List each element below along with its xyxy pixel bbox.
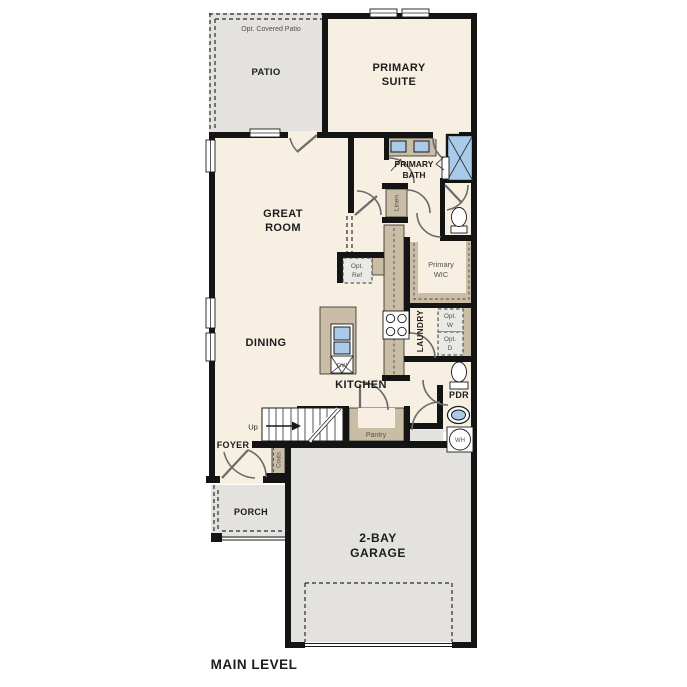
water-heater-label: WH xyxy=(455,438,465,444)
window-left-3 xyxy=(206,333,215,361)
great-room-label-1: GREAT xyxy=(263,208,303,220)
primary-bath-label-2: BATH xyxy=(403,170,426,180)
opt-dryer-label-1: Opt. xyxy=(444,336,456,343)
primary-suite-label-1: PRIMARY xyxy=(372,62,425,74)
primary-wic-label-2: WIC xyxy=(434,270,449,279)
laundry-label: LAUNDRY xyxy=(416,310,425,352)
patio-label: PATIO xyxy=(251,67,280,78)
stairs-up-label: Up xyxy=(248,423,258,432)
pdr-sink-icon xyxy=(448,407,470,424)
toilet-pdr-icon xyxy=(450,362,468,389)
primary-suite-label-2: SUITE xyxy=(382,76,416,88)
opt-covered-patio-label: Opt. Covered Patio xyxy=(241,26,301,33)
staircase xyxy=(262,408,343,441)
dining-label: DINING xyxy=(246,337,287,349)
porch-label: PORCH xyxy=(234,507,268,517)
garage-label-2: GARAGE xyxy=(350,546,406,560)
floor-plan-page: Opt. Covered Patio PATIO PRIMARY SUITE G… xyxy=(0,0,687,687)
window-left-2 xyxy=(206,298,215,328)
pdr-label: PDR xyxy=(449,390,469,400)
opt-refrigerator-box xyxy=(343,258,372,283)
opt-washer-label-1: Opt. xyxy=(444,313,456,320)
island-sink-icon xyxy=(331,324,353,357)
floor-plan-drawing: Opt. Covered Patio PATIO PRIMARY SUITE G… xyxy=(0,0,687,687)
shower-icon xyxy=(442,135,473,181)
window-suite-2 xyxy=(402,9,429,17)
pantry-label: Pantry xyxy=(366,432,387,439)
pantry-door-recess xyxy=(358,408,395,428)
porch-post xyxy=(211,533,222,542)
opt-ref-label-2: Ref xyxy=(352,272,362,279)
cooktop-icon xyxy=(383,311,409,339)
window-greatroom-patio xyxy=(250,129,280,137)
primary-wic-label-1: Primary xyxy=(428,260,454,269)
linen-label: Linen xyxy=(394,195,401,211)
window-suite-1 xyxy=(370,9,397,17)
coats-label: Coats xyxy=(277,452,283,468)
main-level-title: MAIN LEVEL xyxy=(211,657,298,672)
foyer-label: FOYER xyxy=(217,440,250,450)
opt-washer-label-2: W xyxy=(447,322,454,329)
window-left-1 xyxy=(206,140,215,172)
toilet-water-closet-icon xyxy=(451,208,467,234)
great-room-label-2: ROOM xyxy=(265,222,301,234)
opt-dryer-label-2: D xyxy=(448,345,453,352)
kitchen-label: KITCHEN xyxy=(335,379,387,391)
dishwasher-label: DW xyxy=(337,364,347,370)
opt-ref-label-1: Opt. xyxy=(351,263,363,270)
garage-floor xyxy=(287,446,471,644)
garage-label-1: 2-BAY xyxy=(359,531,396,545)
laundry-shelf xyxy=(463,308,471,356)
primary-bath-label-1: PRIMARY xyxy=(395,159,434,169)
